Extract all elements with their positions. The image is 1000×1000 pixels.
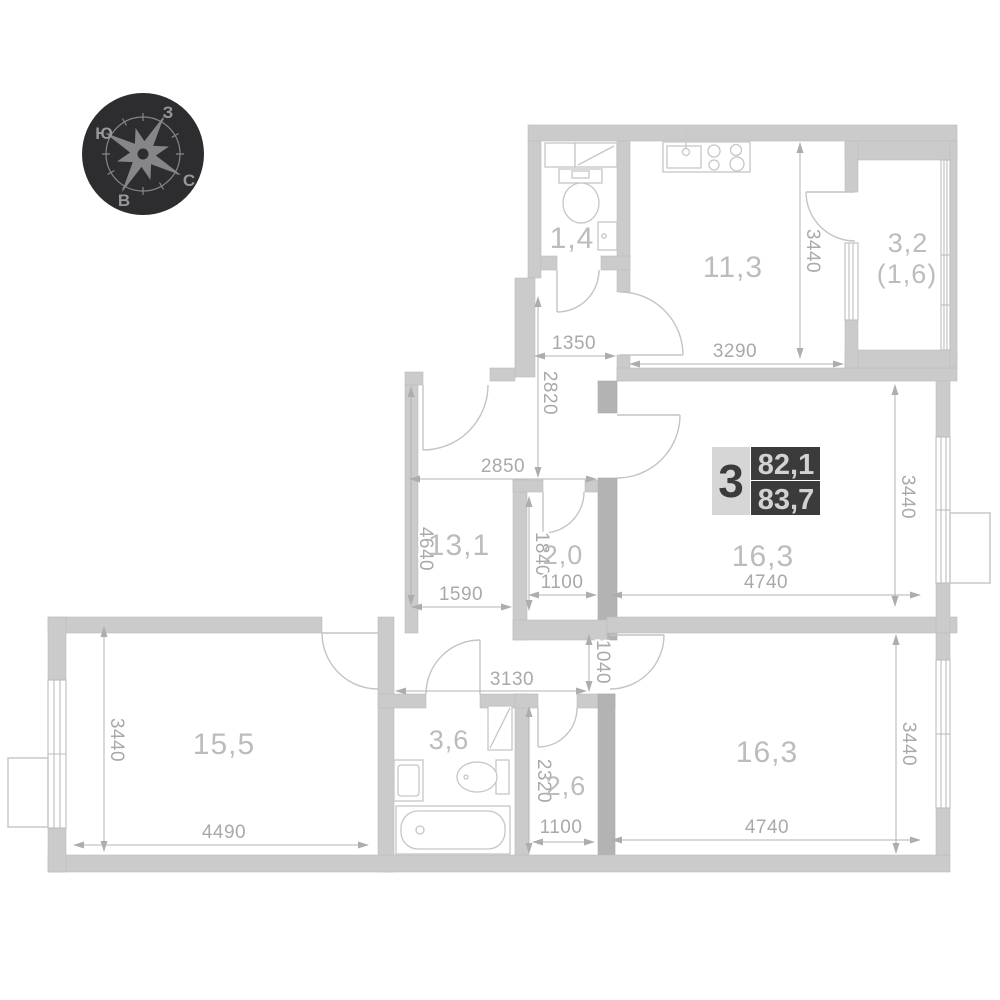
door-mid-room	[617, 415, 680, 478]
dim-vestibule-w: 1350	[552, 333, 596, 354]
dim-passage-w: 3130	[490, 669, 534, 690]
bathtub-icon	[396, 806, 510, 854]
door-entrance	[423, 385, 488, 450]
bath-shaft-icon	[488, 706, 512, 750]
room-label-closet: 2,6	[546, 771, 587, 801]
toilet-wc-icon	[559, 169, 602, 223]
ac-basket-right	[950, 513, 990, 583]
wc-shaft-icon	[545, 143, 617, 167]
window-bottom-room	[936, 660, 950, 808]
door-bottom-room	[610, 635, 664, 689]
dim-room-bottom-w: 4740	[745, 817, 789, 838]
dim-kitchen-h: 3440	[802, 229, 823, 273]
room-label-room-left: 15,5	[193, 728, 255, 761]
window-left-room	[48, 680, 66, 828]
door-bathroom	[426, 640, 480, 694]
dim-closet-w: 1100	[540, 817, 583, 838]
dim-room-bottom-h: 3440	[898, 722, 919, 766]
total-area-value: 83,7	[758, 484, 814, 516]
door-wardrobe	[543, 492, 584, 533]
window-kitchen-balcony	[845, 243, 858, 320]
window-mid-room	[936, 437, 950, 583]
door-closet	[538, 708, 577, 747]
room-label-wc: 1,4	[550, 222, 595, 255]
apartment-info-box: 3 82,1 83,7	[712, 447, 820, 516]
dim-room-left-w: 4490	[202, 822, 246, 843]
dim-hall-w: 2850	[481, 456, 525, 477]
compass-west-label: З	[163, 103, 174, 122]
dim-kitchen-w: 3290	[713, 341, 757, 362]
room-label-kitchen: 11,3	[703, 251, 763, 284]
dim-vestibule-h: 2820	[539, 371, 560, 415]
toilet-bath-icon	[457, 760, 509, 794]
rooms-count: 3	[718, 455, 744, 507]
compass-north-label: С	[183, 171, 195, 190]
washbasin-wc-icon	[598, 222, 617, 250]
room-label-wardrobe: 2,0	[543, 540, 584, 570]
floor-plan: З Ю С В	[0, 0, 1000, 1000]
compass-rose: З Ю С В	[82, 93, 204, 215]
compass-east-label: В	[118, 191, 130, 210]
ac-basket-left	[8, 758, 48, 827]
dim-room-mid-w: 4740	[744, 572, 788, 593]
room-label-bathroom: 3,6	[429, 725, 470, 755]
room-label-hallway: 13,1	[428, 529, 490, 562]
compass-south-label: Ю	[95, 124, 113, 143]
room-labels: 1,4 11,3 3,2 (1,6) 13,1 2,0 16,3 15,5 3,…	[193, 222, 937, 801]
balcony-glazing	[941, 160, 950, 350]
room-label-balcony: 3,2	[888, 228, 929, 258]
room-label-room-mid: 16,3	[732, 540, 794, 573]
door-kitchen	[620, 292, 683, 355]
dim-wardrobe-w: 1100	[541, 572, 584, 593]
door-left-room	[322, 633, 378, 689]
dim-room-left-h: 3440	[106, 718, 127, 762]
dim-hall-bottom-w: 1590	[439, 584, 483, 605]
dim-room-mid-h: 3440	[897, 475, 918, 519]
floor-plan-page: З Ю С В	[0, 0, 1000, 1000]
door-wc	[557, 270, 599, 312]
living-area-value: 82,1	[758, 449, 814, 481]
dim-passage-h: 1040	[592, 640, 613, 684]
room-label-room-bottom: 16,3	[736, 736, 798, 769]
room-label-balcony-reduced: (1,6)	[877, 259, 938, 289]
